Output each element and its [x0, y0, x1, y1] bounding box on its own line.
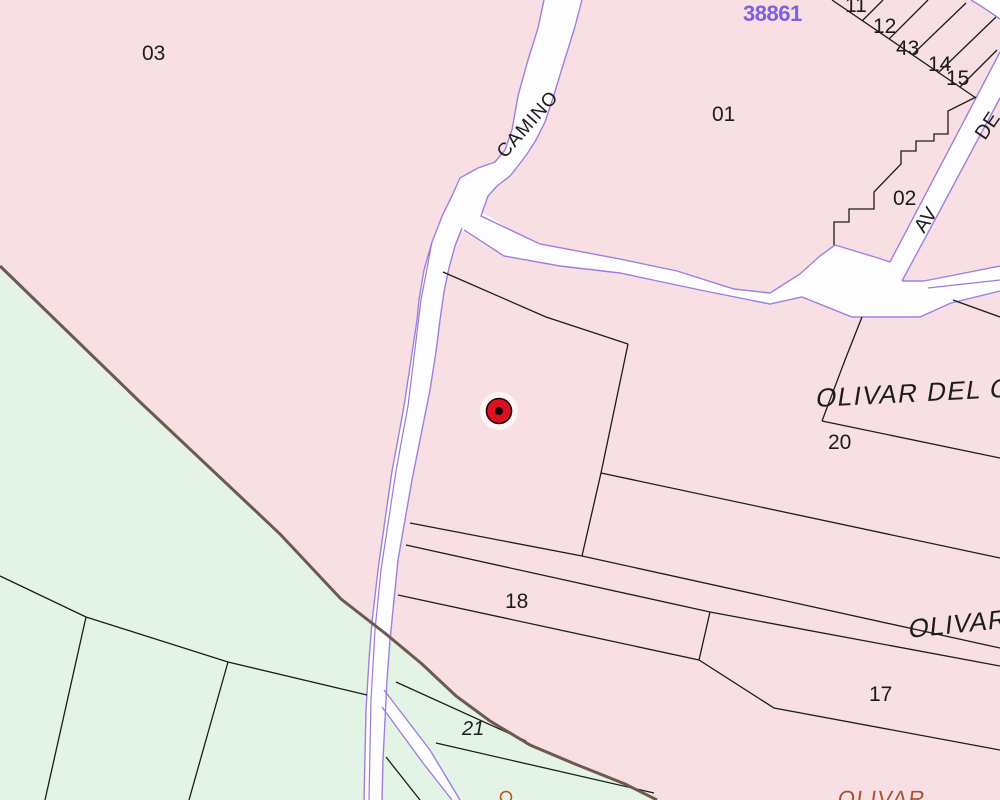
svg-text:21: 21 — [461, 718, 484, 740]
svg-text:17: 17 — [869, 683, 892, 706]
svg-text:01: 01 — [712, 103, 735, 126]
svg-text:OLIVAR: OLIVAR — [836, 786, 928, 800]
svg-text:20: 20 — [828, 431, 851, 454]
svg-text:18: 18 — [505, 590, 528, 613]
svg-text:03: 03 — [142, 42, 165, 65]
svg-text:12: 12 — [873, 15, 896, 38]
svg-text:38861: 38861 — [743, 1, 802, 26]
svg-text:11: 11 — [845, 0, 867, 17]
svg-text:43: 43 — [896, 37, 919, 60]
svg-text:15: 15 — [946, 67, 969, 90]
svg-text:02: 02 — [893, 187, 916, 210]
